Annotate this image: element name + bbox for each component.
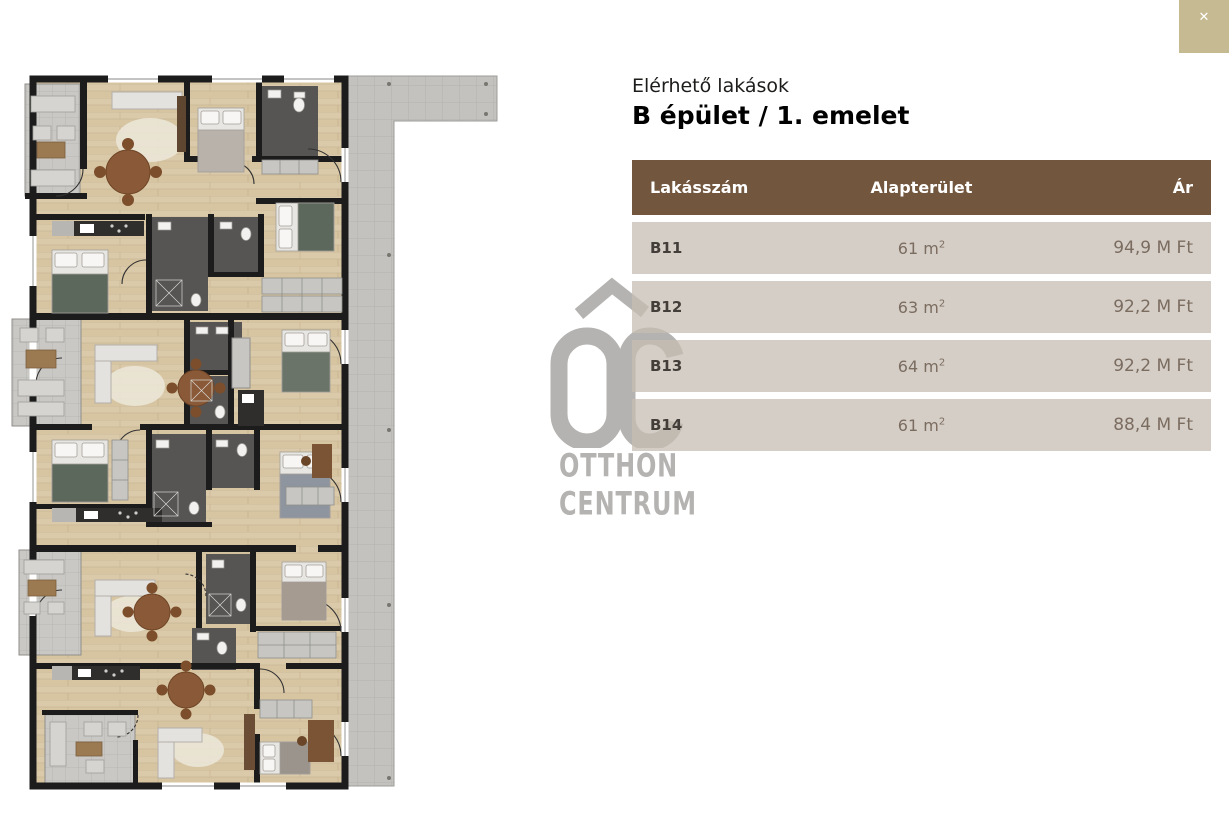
close-button[interactable]: ✕ bbox=[1179, 0, 1229, 53]
logo-word-otthon: OTTHON bbox=[559, 446, 671, 487]
apartment-price: 92,2 M Ft bbox=[1033, 297, 1193, 317]
panel-subtitle: Elérhető lakások bbox=[632, 75, 1211, 97]
apartment-row-b14[interactable]: B14 61 m2 88,4 M Ft bbox=[632, 399, 1211, 451]
apartment-number: B14 bbox=[650, 416, 810, 434]
apartments-table: Lakásszám Alapterület Ár B11 61 m2 94,9 … bbox=[632, 160, 1211, 451]
table-header-row: Lakásszám Alapterület Ár bbox=[632, 160, 1211, 215]
apartment-area: 61 m2 bbox=[810, 416, 1033, 435]
floor-plan bbox=[0, 0, 500, 815]
apartment-number: B11 bbox=[650, 239, 810, 257]
apartment-price: 88,4 M Ft bbox=[1033, 415, 1193, 435]
apartments-panel: Elérhető lakások B épület / 1. emelet La… bbox=[632, 75, 1211, 451]
apartment-number: B12 bbox=[650, 298, 810, 316]
apartment-number: B13 bbox=[650, 357, 810, 375]
apartment-row-b12[interactable]: B12 63 m2 92,2 M Ft bbox=[632, 281, 1211, 333]
apartment-row-b13[interactable]: B13 64 m2 92,2 M Ft bbox=[632, 340, 1211, 392]
apartment-price: 92,2 M Ft bbox=[1033, 356, 1193, 376]
column-header-alapterulet: Alapterület bbox=[810, 178, 1033, 197]
apartment-area: 61 m2 bbox=[810, 239, 1033, 258]
corridor-lights bbox=[387, 82, 488, 780]
close-icon: ✕ bbox=[1199, 11, 1210, 24]
column-header-lakasszam: Lakásszám bbox=[650, 178, 810, 197]
apartment-area: 64 m2 bbox=[810, 357, 1033, 376]
column-header-ar: Ár bbox=[1033, 178, 1193, 197]
apartment-row-b11[interactable]: B11 61 m2 94,9 M Ft bbox=[632, 222, 1211, 274]
panel-title: B épület / 1. emelet bbox=[632, 101, 1211, 130]
apartment-price: 94,9 M Ft bbox=[1033, 238, 1193, 258]
modal-overlay: OTTHON CENTRUM Elérhető lakások B épület… bbox=[0, 0, 1229, 815]
apartment-area: 63 m2 bbox=[810, 298, 1033, 317]
logo-word-centrum: CENTRUM bbox=[559, 484, 671, 525]
